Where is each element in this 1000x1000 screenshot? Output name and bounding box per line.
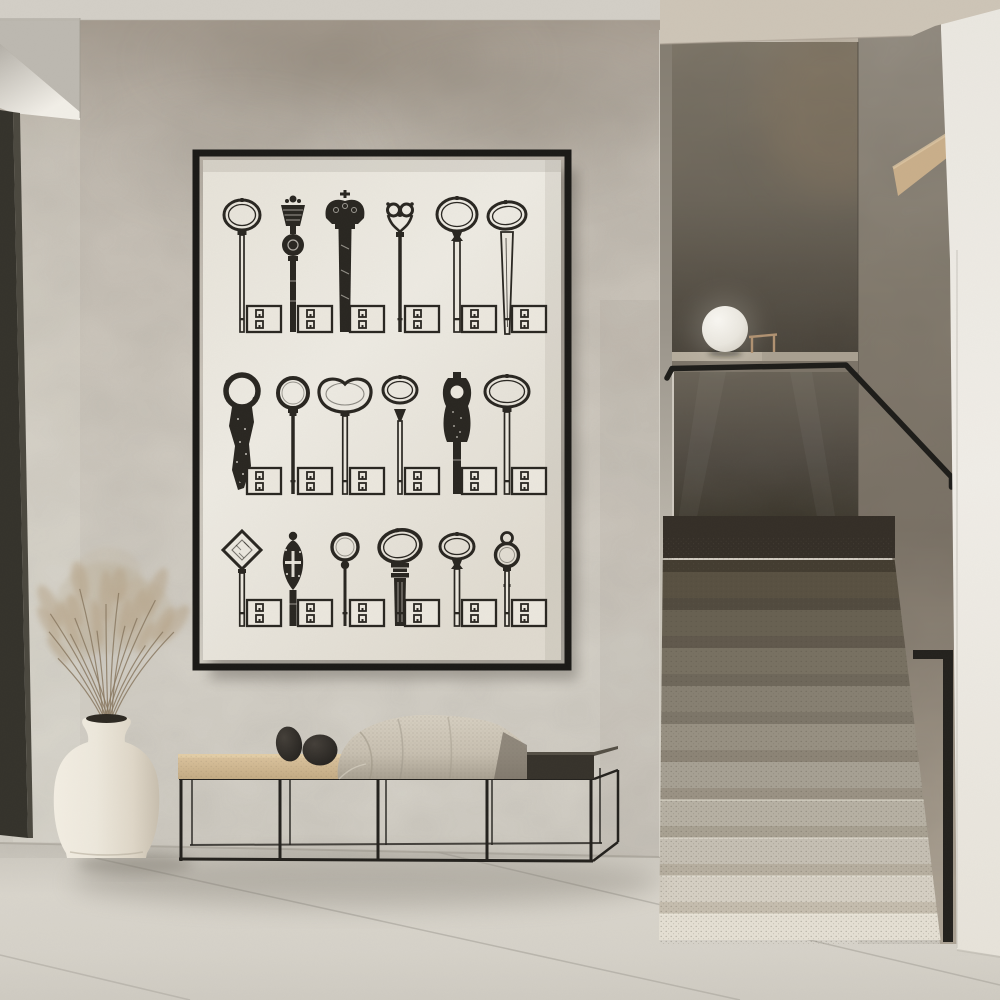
photo-grain bbox=[0, 0, 1000, 1000]
scene-root bbox=[0, 0, 1000, 1000]
